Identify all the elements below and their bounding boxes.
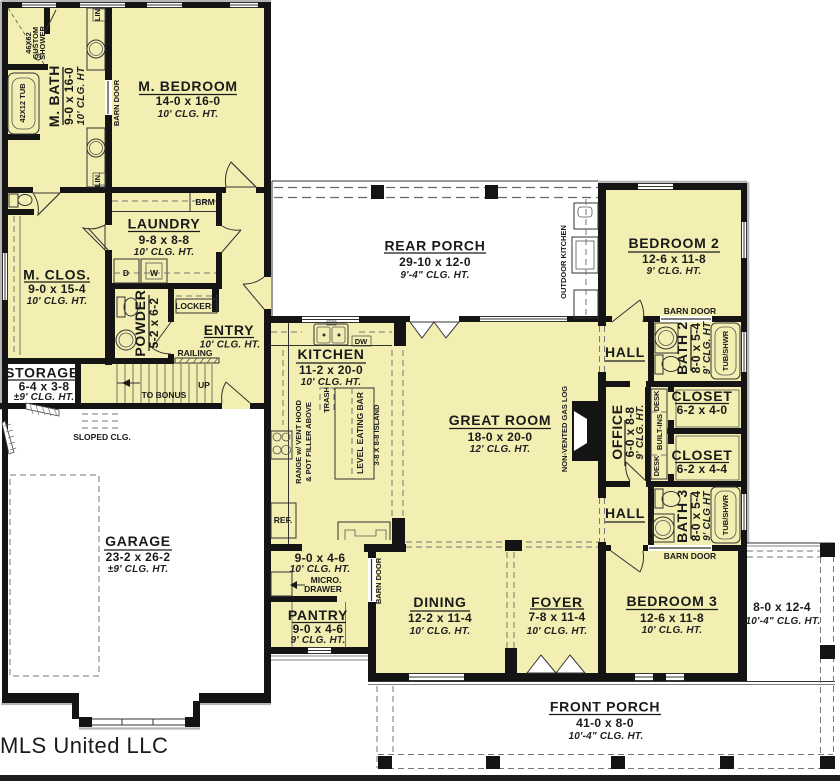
svg-text:REF.: REF. [274, 515, 292, 525]
svg-text:5-2 x 6-2: 5-2 x 6-2 [147, 298, 161, 349]
svg-text:D: D [123, 268, 129, 278]
svg-text:BARN DOOR: BARN DOOR [664, 551, 716, 561]
svg-text:HALL: HALL [605, 344, 645, 360]
svg-text:RAILING: RAILING [178, 348, 213, 358]
svg-text:10' CLG. HT.: 10' CLG. HT. [527, 626, 588, 637]
svg-text:MLS United LLC: MLS United LLC [0, 733, 168, 758]
svg-text:DRAWER: DRAWER [304, 584, 342, 594]
svg-text:10' CLG. HT.: 10' CLG. HT. [158, 109, 219, 120]
svg-text:SLOPED CLG.: SLOPED CLG. [73, 432, 131, 442]
svg-text:BRM: BRM [195, 197, 214, 207]
svg-text:10' CLG. HT.: 10' CLG. HT. [134, 247, 195, 258]
svg-text:9' CLG. HT.: 9' CLG. HT. [291, 635, 346, 646]
svg-text:KITCHEN: KITCHEN [297, 346, 364, 362]
svg-text:14-0 x 16-0: 14-0 x 16-0 [156, 94, 221, 108]
svg-text:M. CLOS.: M. CLOS. [23, 267, 91, 283]
svg-text:BARN DOOR: BARN DOOR [374, 557, 383, 604]
svg-text:10'-4" CLG. HT.: 10'-4" CLG. HT. [569, 731, 644, 742]
svg-text:9' CLG HT: 9' CLG HT [702, 490, 713, 540]
svg-text:M. BATH: M. BATH [46, 65, 62, 127]
svg-text:9' CLG. HT: 9' CLG. HT [702, 321, 713, 374]
svg-text:DINING: DINING [413, 594, 466, 610]
svg-text:29-10 x 12-0: 29-10 x 12-0 [399, 255, 471, 269]
svg-text:M. BEDROOM: M. BEDROOM [138, 78, 238, 94]
svg-text:10' CLG. HT.: 10' CLG. HT. [27, 296, 88, 307]
svg-text:PANTRY: PANTRY [288, 607, 348, 623]
svg-text:7-8 x 11-4: 7-8 x 11-4 [528, 610, 585, 624]
svg-text:9-0 x 4-6: 9-0 x 4-6 [293, 622, 344, 636]
svg-text:POWDER: POWDER [132, 289, 148, 356]
svg-text:12-6 x 11-8: 12-6 x 11-8 [640, 611, 704, 625]
svg-text:BATH 2: BATH 2 [674, 321, 690, 375]
svg-text:3-8 X 8-8 ISLAND: 3-8 X 8-8 ISLAND [372, 404, 381, 465]
svg-text:W: W [150, 268, 159, 278]
svg-text:& POT FILLER ABOVE: & POT FILLER ABOVE [304, 402, 313, 482]
svg-text:10' CLG. HT.: 10' CLG. HT. [301, 377, 362, 388]
svg-text:DW: DW [355, 337, 368, 346]
svg-text:BUILT-INS: BUILT-INS [655, 414, 664, 450]
svg-text:DESK: DESK [652, 390, 661, 411]
svg-text:10' CLG. HT.: 10' CLG. HT. [642, 625, 703, 636]
svg-text:12-2 x 11-4: 12-2 x 11-4 [408, 611, 472, 625]
svg-text:6-2 x 4-0: 6-2 x 4-0 [677, 403, 728, 417]
svg-text:LEVEL EATING BAR: LEVEL EATING BAR [355, 392, 365, 474]
svg-text:9' CLG. HT.: 9' CLG. HT. [635, 405, 646, 460]
svg-text:41-0 x 8-0: 41-0 x 8-0 [576, 716, 634, 730]
svg-text:23-2 x 26-2: 23-2 x 26-2 [106, 550, 171, 564]
svg-text:RANGE w/ VENT HOOD: RANGE w/ VENT HOOD [294, 400, 303, 484]
svg-text:BEDROOM 2: BEDROOM 2 [628, 235, 719, 251]
svg-text:10' CLG. HT: 10' CLG. HT [76, 66, 87, 125]
svg-text:9-0 x 4-6: 9-0 x 4-6 [295, 551, 346, 565]
svg-text:TO BONUS: TO BONUS [142, 390, 187, 400]
svg-text:TUB/SHWR: TUB/SHWR [721, 330, 730, 371]
svg-text:9-0 x 15-4: 9-0 x 15-4 [28, 282, 86, 296]
svg-text:LAUNDRY: LAUNDRY [128, 216, 201, 232]
svg-text:TUB/SHWR: TUB/SHWR [721, 494, 730, 535]
svg-text:18-0 x 20-0: 18-0 x 20-0 [468, 430, 533, 444]
svg-text:BEDROOM 3: BEDROOM 3 [626, 593, 717, 609]
svg-text:HALL: HALL [605, 505, 645, 521]
svg-text:GREAT ROOM: GREAT ROOM [449, 412, 551, 428]
svg-text:LIN.: LIN. [93, 173, 102, 187]
svg-text:8-0 x 12-4: 8-0 x 12-4 [753, 600, 811, 614]
svg-text:6-2 x 4-4: 6-2 x 4-4 [677, 462, 728, 476]
svg-text:FRONT PORCH: FRONT PORCH [550, 699, 660, 715]
svg-text:BARN DOOR: BARN DOOR [664, 306, 716, 316]
svg-text:TRASH: TRASH [322, 387, 331, 413]
svg-text:OUTDOOR KITCHEN: OUTDOOR KITCHEN [559, 225, 568, 299]
svg-text:UP: UP [198, 380, 210, 390]
svg-text:8-0 x 5-4: 8-0 x 5-4 [689, 323, 703, 374]
svg-text:12-6 x 11-8: 12-6 x 11-8 [642, 252, 706, 266]
svg-text:9'-4" CLG. HT.: 9'-4" CLG. HT. [400, 270, 469, 281]
svg-text:9' CLG. HT.: 9' CLG. HT. [647, 266, 702, 277]
svg-text:10'-4" CLG. HT.: 10'-4" CLG. HT. [746, 616, 821, 627]
svg-text:8-0 x 5-4: 8-0 x 5-4 [689, 491, 703, 542]
svg-text:12' CLG. HT.: 12' CLG. HT. [470, 444, 531, 455]
svg-text:10' CLG. HT.: 10' CLG. HT. [290, 564, 351, 575]
svg-text:SHOWER: SHOWER [38, 26, 47, 60]
svg-text:9-8 x 8-8: 9-8 x 8-8 [139, 233, 190, 247]
svg-text:11-2 x 20-0: 11-2 x 20-0 [299, 363, 363, 377]
svg-text:10' CLG. HT.: 10' CLG. HT. [410, 626, 471, 637]
svg-text:BARN DOOR: BARN DOOR [112, 79, 121, 126]
svg-text:DESK: DESK [652, 455, 661, 476]
svg-text:±9' CLG. HT.: ±9' CLG. HT. [108, 564, 169, 575]
svg-text:FOYER: FOYER [531, 594, 583, 610]
svg-text:42X12 TUB: 42X12 TUB [18, 83, 27, 123]
svg-text:LOCKERS: LOCKERS [175, 301, 217, 311]
svg-text:STORAGE: STORAGE [5, 365, 79, 381]
svg-text:NON-VENTED GAS LOG: NON-VENTED GAS LOG [560, 386, 569, 472]
svg-text:BATH 3: BATH 3 [674, 489, 690, 543]
svg-text:ENTRY: ENTRY [204, 322, 254, 338]
svg-text:GARAGE: GARAGE [105, 533, 171, 549]
svg-text:CLOSET: CLOSET [672, 388, 733, 404]
svg-text:LIN.: LIN. [93, 7, 102, 21]
svg-text:±9' CLG. HT.: ±9' CLG. HT. [14, 392, 75, 403]
svg-text:CLOSET: CLOSET [672, 447, 733, 463]
svg-text:REAR PORCH: REAR PORCH [384, 238, 485, 254]
svg-text:9-0 x 16-0: 9-0 x 16-0 [62, 67, 76, 125]
